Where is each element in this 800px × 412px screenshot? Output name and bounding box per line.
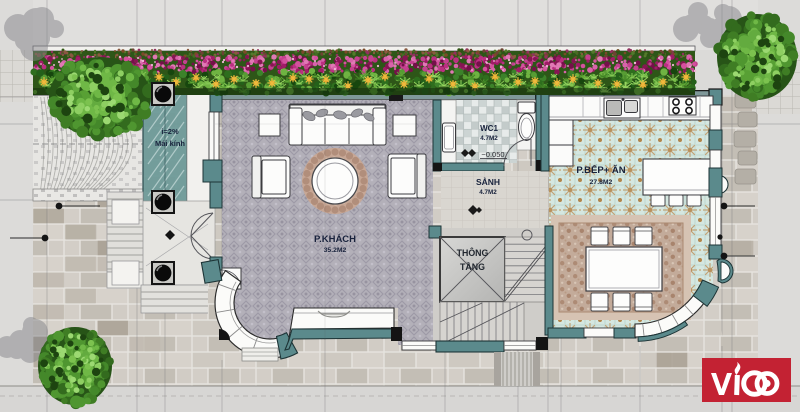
svg-text:WC1: WC1 <box>480 124 498 133</box>
svg-text:P.KHÁCH: P.KHÁCH <box>314 234 356 245</box>
svg-text:TẦNG: TẦNG <box>460 262 485 272</box>
svg-text:27.8M2: 27.8M2 <box>590 179 613 186</box>
svg-text:−0.050: −0.050 <box>481 150 504 159</box>
svg-text:4.7M2: 4.7M2 <box>480 135 498 142</box>
svg-text:THÔNG: THÔNG <box>457 247 489 258</box>
svg-text:SẢNH: SẢNH <box>476 176 500 187</box>
svg-text:35.2M2: 35.2M2 <box>324 247 347 254</box>
svg-text:4.7M2: 4.7M2 <box>479 189 497 196</box>
svg-text:i=2%: i=2% <box>161 127 179 136</box>
svg-text:P.BẾP+ ĂN: P.BẾP+ ĂN <box>576 165 625 176</box>
svg-text:Mái kính: Mái kính <box>155 139 185 148</box>
